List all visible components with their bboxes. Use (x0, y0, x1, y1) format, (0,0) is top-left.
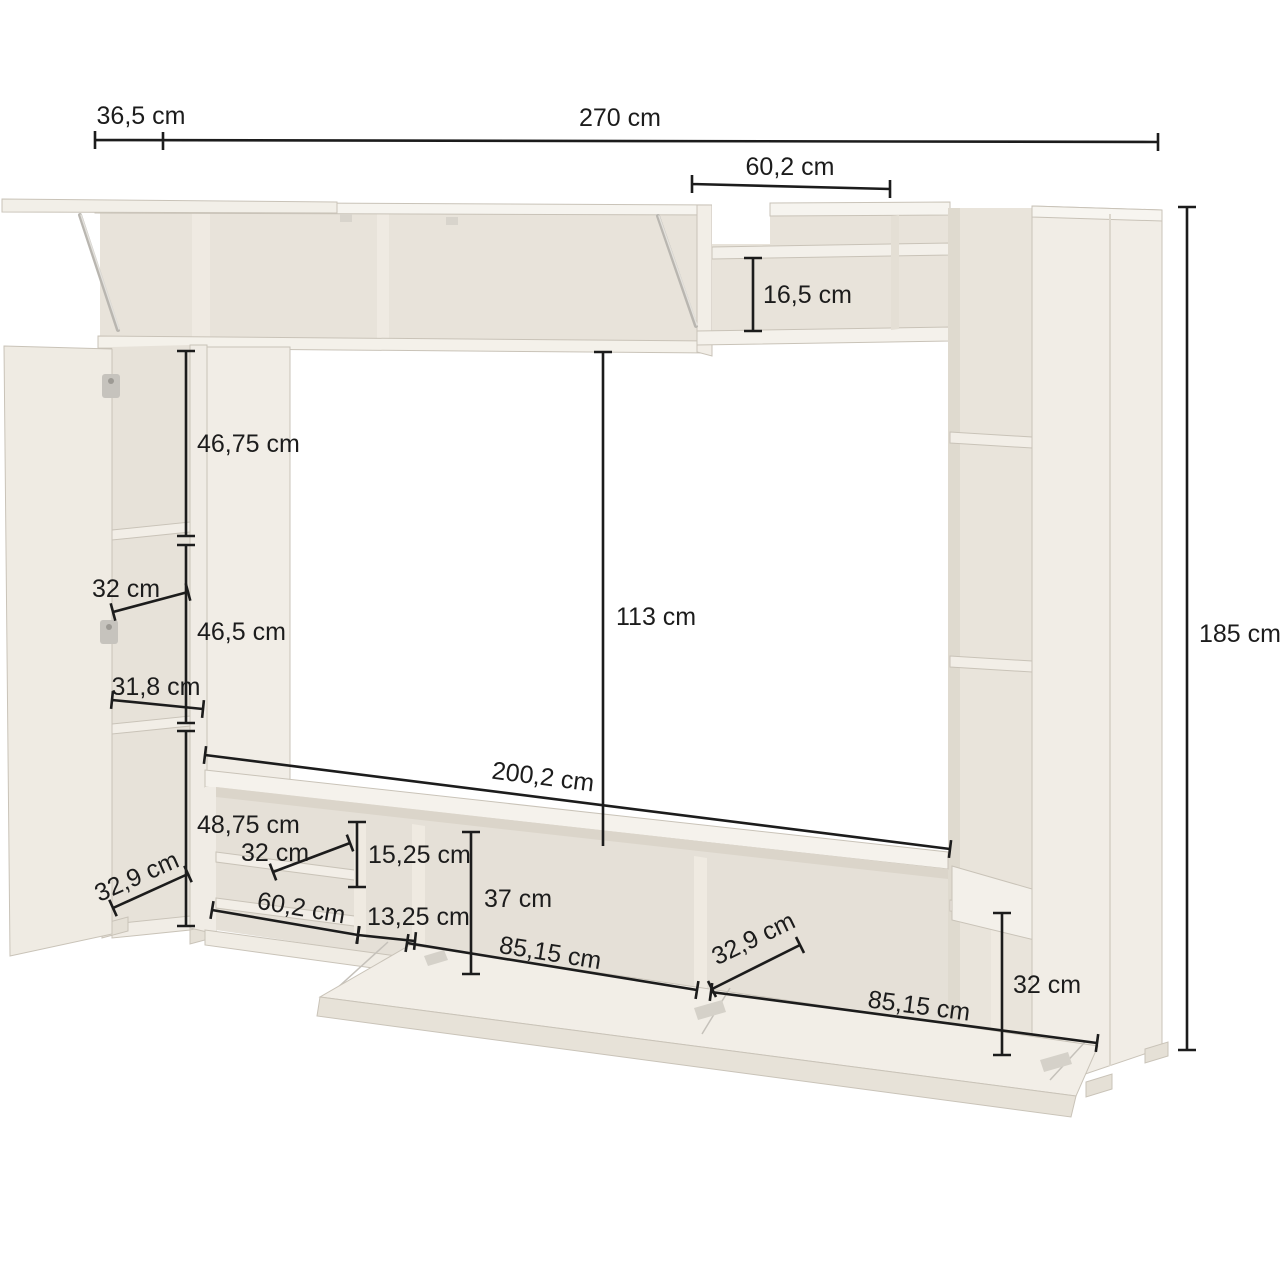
dim-label-left-lower-section: 48,75 cm (197, 811, 300, 839)
dim-label-left-shelf-depth: 32 cm (92, 575, 160, 603)
dimension-top-width: 36,5 cm 270 cm (95, 102, 1158, 151)
dim-line-tv-niche-height (594, 352, 612, 846)
dim-label-stand-compartment-height: 37 cm (484, 885, 552, 913)
dim-label-stand-small-compartment-width: 13,25 cm (367, 903, 470, 931)
diagram-svg: 36,5 cm 270 cm 60,2 cm 16,5 cm 185 cm 46… (0, 0, 1280, 1280)
dim-line-total-height (1178, 207, 1196, 1050)
bridge-divider-left (192, 212, 210, 343)
tv-niche-left-wall (207, 347, 290, 784)
door-bracket-2 (446, 217, 458, 225)
right-column-front-panel (1032, 206, 1162, 1092)
left-cabinet-open-door (4, 346, 112, 956)
dim-label-top-shelf-height: 16,5 cm (763, 281, 852, 309)
bridge-divider-right (377, 212, 389, 344)
door-hinge-upper (102, 374, 120, 398)
dim-label-left-middle-section: 46,5 cm (197, 618, 286, 646)
dimension-total-height: 185 cm (1178, 207, 1280, 1050)
furniture-dimension-diagram: 36,5 cm 270 cm 60,2 cm 16,5 cm 185 cm 46… (0, 0, 1280, 1280)
small-unit-notch-open (712, 196, 770, 244)
dim-label-total-width: 270 cm (579, 104, 661, 132)
small-unit-top-board (770, 202, 950, 216)
flip-door-left-open (2, 199, 337, 213)
dimension-tv-niche-height: 113 cm (594, 352, 696, 846)
furniture-drawing (2, 196, 1168, 1117)
right-column-foot-front (1086, 1074, 1112, 1097)
small-unit-divider (891, 215, 899, 330)
dimension-top-shelf-width: 60,2 cm (692, 153, 890, 198)
door-hinge-lower (100, 620, 118, 644)
door-hinge-lower-pin (106, 624, 112, 630)
dim-label-stand-upper-compartment: 15,25 cm (368, 841, 471, 869)
top-right-shelf-unit (697, 196, 950, 345)
dim-label-tv-niche-height: 113 cm (616, 603, 696, 631)
dim-label-left-upper-section: 46,75 cm (197, 430, 300, 458)
door-bracket-1 (340, 214, 352, 222)
dim-label-stand-shelf-depth: 32 cm (241, 839, 309, 867)
dim-label-left-interior-width: 31,8 cm (112, 673, 201, 701)
dim-label-depth-top: 36,5 cm (97, 102, 186, 130)
bridge-back-panel (100, 212, 710, 346)
top-bridge-cabinet (2, 199, 723, 356)
door-hinge-upper-pin (108, 378, 114, 384)
dim-label-total-height: 185 cm (1199, 620, 1280, 648)
dim-label-top-shelf-width: 60,2 cm (746, 153, 835, 181)
dim-label-tv-niche-width: 200,2 cm (490, 757, 596, 798)
dim-line-top-width (95, 131, 1158, 151)
left-cabinet-back (112, 345, 190, 936)
dim-label-right-bottom-height: 32 cm (1013, 971, 1081, 999)
